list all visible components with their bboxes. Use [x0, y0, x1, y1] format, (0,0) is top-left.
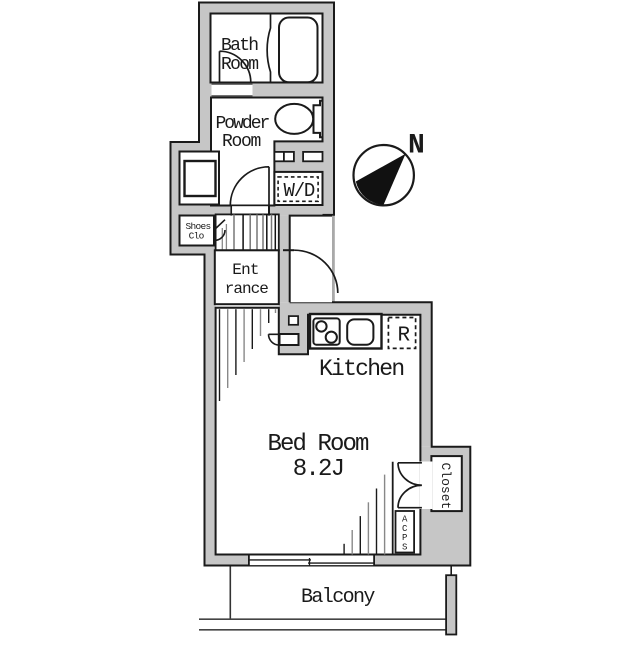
svg-text:Room: Room	[221, 55, 258, 75]
svg-text:8.2J: 8.2J	[293, 456, 343, 483]
svg-text:Kitchen: Kitchen	[319, 356, 403, 382]
svg-text:Closet: Closet	[438, 463, 453, 510]
svg-text:R: R	[398, 325, 411, 348]
svg-text:Clo: Clo	[189, 231, 205, 242]
svg-text:S: S	[402, 542, 407, 552]
svg-text:Powder: Powder	[216, 114, 270, 134]
svg-text:W/D: W/D	[284, 180, 315, 202]
svg-text:N: N	[408, 131, 425, 162]
svg-text:Bath: Bath	[221, 36, 258, 56]
svg-text:Room: Room	[222, 132, 261, 152]
svg-text:Balcony: Balcony	[301, 586, 375, 609]
svg-text:Ent: Ent	[232, 261, 258, 279]
svg-text:rance: rance	[225, 280, 268, 298]
svg-text:Bed Room: Bed Room	[268, 431, 370, 458]
